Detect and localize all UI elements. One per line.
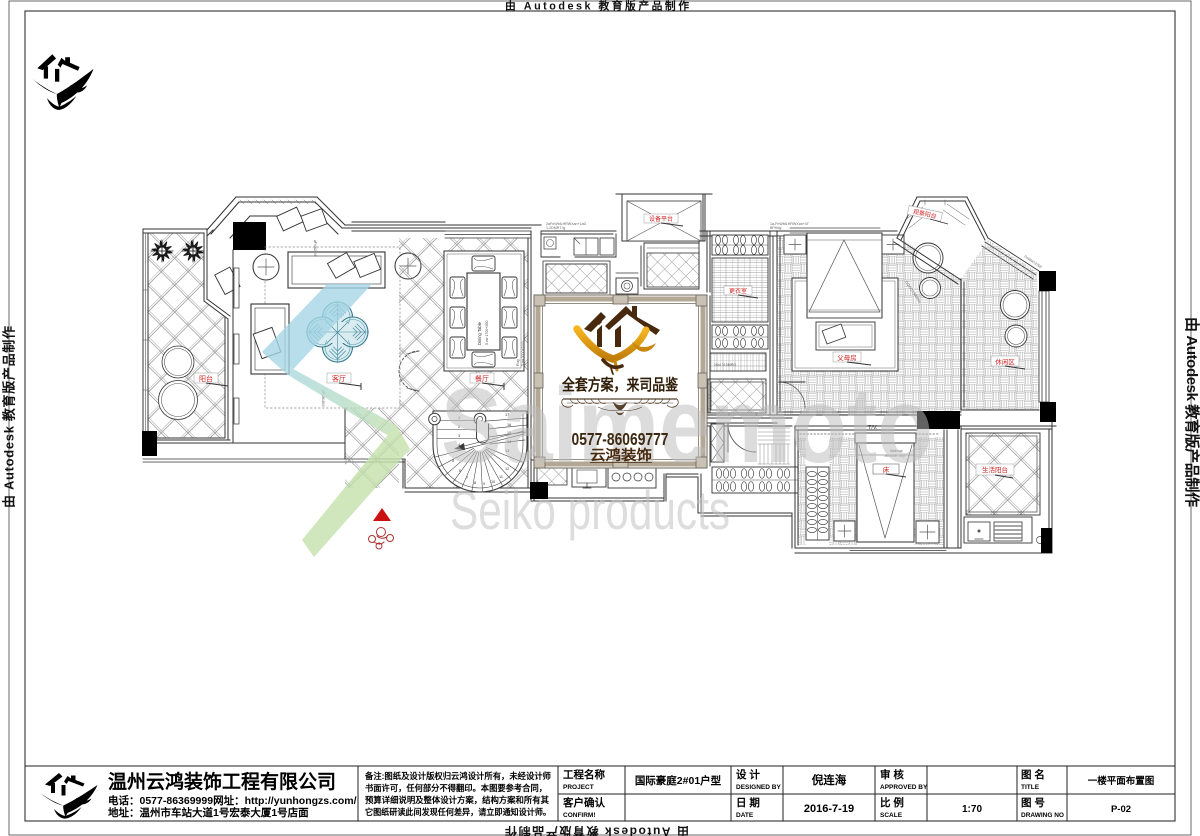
svg-text:2016-7-19: 2016-7-19 [804,803,854,815]
svg-text:DESIGNED BY: DESIGNED BY [736,784,781,791]
svg-text:PROJECT: PROJECT [563,784,594,791]
svg-text:阳台: 阳台 [199,374,213,383]
svg-text:云鸿装饰: 云鸿装饰 [590,447,652,463]
svg-text:0577-86069777: 0577-86069777 [572,429,669,449]
svg-text:Dining Table: Dining Table [477,321,482,345]
svg-text:休闲区: 休闲区 [995,357,1015,366]
svg-text:BPHdg: BPHdg [770,226,781,230]
svg-text:1-2DMRT lg: 1-2DMRT lg [546,226,565,230]
svg-text:日 期: 日 期 [736,796,760,809]
svg-text:预算详细说明及整体设计方案，结构方案和所有其: 预算详细说明及整体设计方案，结构方案和所有其 [365,794,549,805]
svg-text:Seiko products: Seiko products [450,479,730,541]
svg-text:床: 床 [883,465,890,474]
svg-text:aFnW2400: aFnW2400 [313,240,317,257]
svg-text:SCALE: SCALE [880,812,903,819]
svg-text:书面许可，任何部分不得翻印。本图要参考合同，: 书面许可，任何部分不得翻印。本图要参考合同， [365,782,547,793]
svg-text:审 核: 审 核 [880,768,904,781]
svg-text:TITLE: TITLE [1021,784,1040,791]
svg-text:客户确认: 客户确认 [562,796,605,809]
svg-text:P-02: P-02 [1111,804,1131,815]
svg-text:5 zw 3000+2000: 5 zw 3000+2000 [521,341,525,366]
svg-text:全套方案，来司品鉴: 全套方案，来司品鉴 [561,375,678,394]
svg-text:DATE: DATE [736,812,754,819]
svg-text:设 计: 设 计 [736,768,760,781]
svg-text:由 Autodesk 教育版产品制作: 由 Autodesk 教育版产品制作 [1183,317,1200,507]
svg-text:1:70: 1:70 [962,804,982,815]
svg-text:Saimemoto: Saimemoto [441,365,933,485]
svg-text:地址：温州市车站大道1号宏泰大厦1号店面: 地址：温州市车站大道1号宏泰大厦1号店面 [108,806,309,819]
svg-text:生活阳台: 生活阳台 [982,465,1008,474]
svg-text:图 名: 图 名 [1021,768,1045,781]
svg-text:倪连海: 倪连海 [812,773,847,787]
svg-text:更衣室: 更衣室 [729,287,747,295]
svg-text:DRAWING NO: DRAWING NO [1021,812,1064,819]
svg-text:5 zw 1700+850: 5 zw 1700+850 [485,321,489,345]
svg-text:国际豪庭2#01户型: 国际豪庭2#01户型 [635,774,722,787]
svg-text:APPROVED BY: APPROVED BY [880,784,928,791]
svg-text:CONFIRM!: CONFIRM! [563,812,596,819]
svg-text:备注:图纸及设计版权归云鸿设计所有，未经设计师: 备注:图纸及设计版权归云鸿设计所有，未经设计师 [364,770,551,781]
svg-text:客厅: 客厅 [332,374,346,383]
svg-text:温州云鸿装饰工程有限公司: 温州云鸿装饰工程有限公司 [108,770,336,793]
svg-text:图 号: 图 号 [1021,797,1045,809]
svg-text:比 例: 比 例 [880,796,904,809]
svg-text:设备平台: 设备平台 [649,215,673,223]
svg-text:一楼平面布置图: 一楼平面布置图 [1088,775,1155,787]
svg-text:由 Autodesk 教育版产品制作: 由 Autodesk 教育版产品制作 [2,326,17,508]
svg-text:它图纸研读此间发现任何差异，请立即通知设计师。: 它图纸研读此间发现任何差异，请立即通知设计师。 [365,806,551,817]
svg-text:餐厅: 餐厅 [475,374,489,383]
svg-text:电话：0577-86369999网址：http://yunh: 电话：0577-86369999网址：http://yunhongzs.com/ [108,794,357,807]
svg-text:工程名称: 工程名称 [563,768,605,781]
svg-text:父母房: 父母房 [837,353,857,362]
